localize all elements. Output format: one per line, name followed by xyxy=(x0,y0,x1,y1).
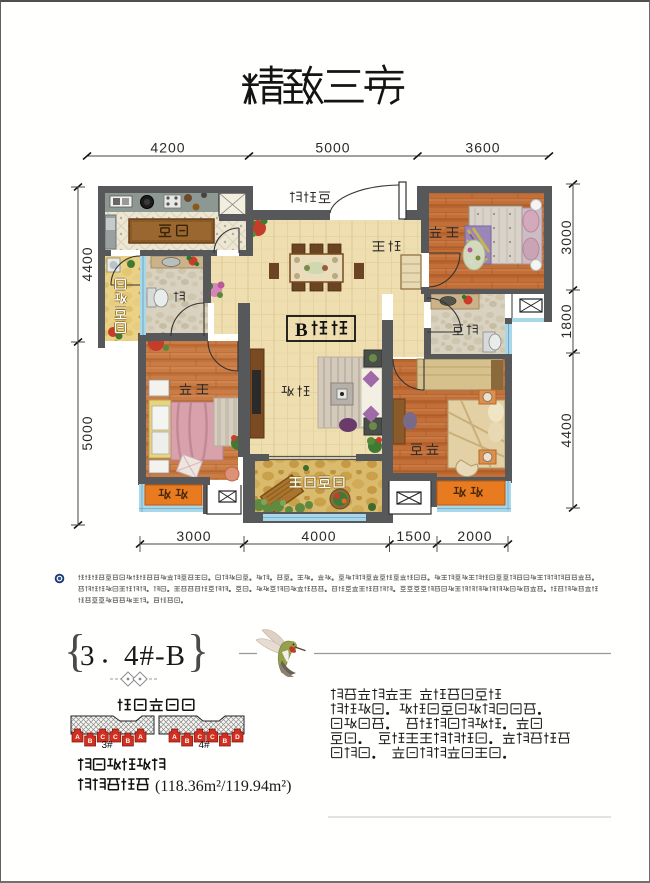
svg-text:A: A xyxy=(138,734,143,741)
svg-text:A: A xyxy=(75,734,80,741)
svg-text:3000: 3000 xyxy=(176,528,211,544)
svg-text:B: B xyxy=(185,738,190,745)
svg-text:1800: 1800 xyxy=(558,303,574,338)
svg-text:4400: 4400 xyxy=(79,246,95,281)
svg-text:B: B xyxy=(295,320,308,341)
svg-text:4200: 4200 xyxy=(150,140,185,156)
svg-text:B: B xyxy=(223,738,228,745)
svg-text:4400: 4400 xyxy=(558,412,574,447)
svg-text:2000: 2000 xyxy=(457,528,492,544)
svg-text:5000: 5000 xyxy=(315,140,350,156)
svg-text:}: } xyxy=(187,625,209,676)
svg-text:3000: 3000 xyxy=(558,219,574,254)
svg-text:D: D xyxy=(235,734,240,741)
svg-text:3600: 3600 xyxy=(465,140,500,156)
svg-text:4#-B: 4#-B xyxy=(124,640,186,672)
svg-text:1500: 1500 xyxy=(396,528,431,544)
svg-text:B: B xyxy=(88,738,93,745)
svg-text:C: C xyxy=(210,734,215,741)
svg-text:3#: 3# xyxy=(101,740,113,751)
svg-text:B: B xyxy=(126,738,131,745)
svg-text:5000: 5000 xyxy=(79,415,95,450)
svg-text:C: C xyxy=(113,734,118,741)
svg-text:4000: 4000 xyxy=(301,528,336,544)
svg-text:(118.36m²/119.94m²): (118.36m²/119.94m²) xyxy=(155,778,291,795)
svg-text:4#: 4# xyxy=(198,740,210,751)
svg-text:A: A xyxy=(172,734,177,741)
svg-text:3: 3 xyxy=(80,640,95,672)
